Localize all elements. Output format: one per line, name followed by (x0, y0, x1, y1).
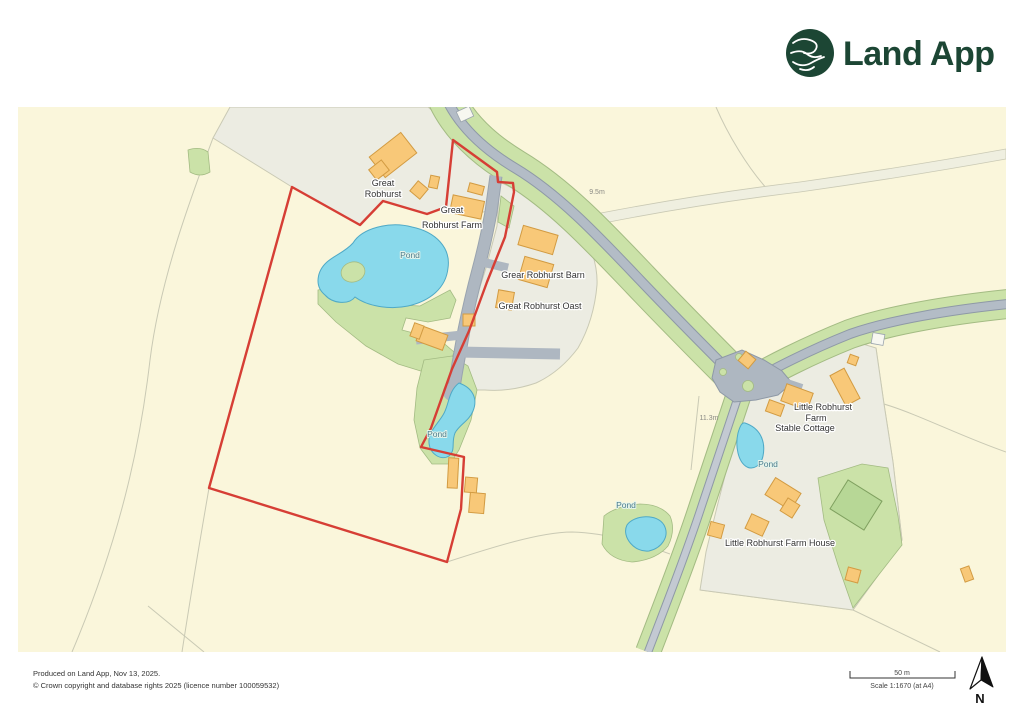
small-green-patch (188, 148, 210, 175)
brand-wordmark: Land App (843, 35, 995, 73)
scale-bar-label: 50 m (894, 670, 910, 677)
map-export-page: Land App (0, 0, 1024, 724)
scale-ratio-label: Scale 1:1670 (at A4) (870, 683, 933, 690)
pond-label: Pond (400, 250, 420, 260)
place-label: Farm (806, 413, 827, 423)
place-label: Robhurst (365, 189, 402, 199)
roundabout-island (743, 381, 754, 392)
north-label: N (975, 691, 984, 706)
page-canvas: Land App (0, 0, 1024, 724)
place-label: Little Robhurst (794, 402, 853, 412)
pond-label: Pond (616, 500, 636, 510)
pond-label: Pond (758, 459, 778, 469)
brand-logo: Land App (786, 29, 995, 77)
place-label: Robhurst Farm (422, 220, 482, 230)
building (707, 521, 724, 538)
road-height-label: 11.3m (700, 415, 719, 422)
building (464, 477, 477, 493)
map-canvas: Great Robhurst Great Robhurst Farm Grear… (18, 98, 1008, 652)
place-label: Great (372, 178, 395, 188)
traffic-island (720, 369, 727, 376)
place-label: Great Robhurst Oast (498, 301, 582, 311)
place-label: Grear Robhurst Barn (501, 270, 585, 280)
building (845, 567, 861, 583)
building-outline (871, 333, 885, 346)
scale-bar: 50 m Scale 1:1670 (at A4) (850, 670, 955, 690)
produced-line: Produced on Land App, Nov 13, 2025. (33, 669, 160, 678)
building (428, 175, 439, 189)
place-label: Stable Cottage (775, 423, 835, 433)
place-label: Great (441, 205, 464, 215)
copyright-line: © Crown copyright and database rights 20… (33, 681, 280, 690)
building (447, 458, 459, 488)
north-arrow-icon: N (970, 657, 993, 706)
road-height-label: 9.5m (589, 189, 605, 196)
attribution: Produced on Land App, Nov 13, 2025. © Cr… (33, 669, 280, 690)
building (469, 492, 486, 513)
pond-label: Pond (427, 429, 447, 439)
place-label: Little Robhurst Farm House (725, 538, 835, 548)
